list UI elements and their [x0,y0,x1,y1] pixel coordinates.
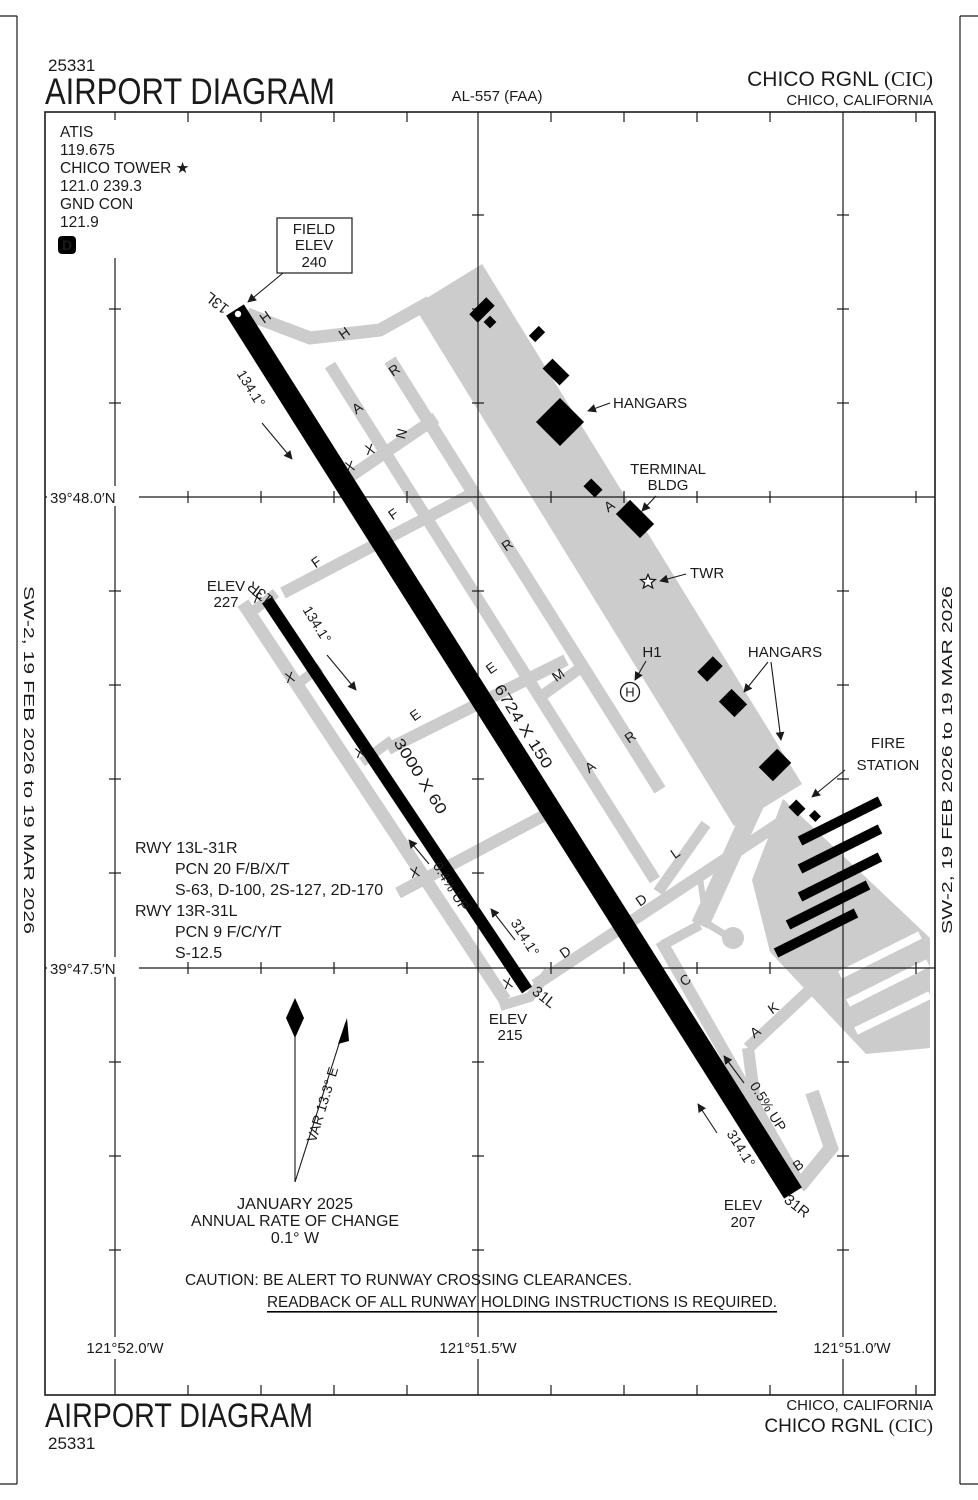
variation-rate-label: ANNUAL RATE OF CHANGE [191,1213,399,1230]
field-elev-line1: FIELD [293,221,336,238]
runway-13r-31l [267,600,527,990]
airport-name: CHICO RGNL [747,68,879,91]
rwy-data-3: RWY 13R-31L [135,903,238,920]
field-elev-line2: ELEV [295,237,333,254]
header: 25331 AIRPORT DIAGRAM AL-557 (FAA) CHICO… [45,56,933,112]
ifr-departure-letter: D [62,237,72,253]
variation-label: VAR 13.3° E [303,1065,341,1144]
lat-label-475: 39°47.5′N [50,961,116,978]
taxiway-letter: E [407,706,424,724]
tower-freqs: 121.0 239.3 [60,178,142,195]
taxiway-letter: E [483,659,500,677]
runup-pad [722,927,744,949]
edge-note-right: SW-2, 19 FEB 2026 to 19 MAR 2026 [939,586,956,934]
caution-line1: CAUTION: BE ALERT TO RUNWAY CROSSING CLE… [185,1272,632,1289]
hangars-east-label: HANGARS [748,644,822,661]
magnetic-north-arrow [338,1018,349,1044]
tower-label: TWR [690,565,724,582]
fire-station-label-2: STATION [857,757,920,774]
runway-data-block: RWY 13L-31R PCN 20 F/B/X/T S-63, D-100, … [135,840,383,962]
field-elev-value: 240 [301,254,326,271]
ground-freq: 121.9 [60,214,99,231]
field-elev-box: FIELD ELEV 240 [248,218,352,302]
footer-airport-icao: (CIC) [889,1416,933,1437]
lon-label-520: 121°52.0′W [86,1340,164,1357]
page-title: AIRPORT DIAGRAM [45,71,335,112]
edge-note-left: SW-2, 19 FEB 2026 to 19 MAR 2026 [20,586,37,934]
rwy-data-2: S-63, D-100, 2S-127, 2D-170 [175,882,383,899]
rwy-data-0: RWY 13L-31R [135,840,238,857]
elev-31l-label: ELEV [489,1011,527,1028]
airport-icao: (CIC) [884,67,933,91]
terminal-label-1: TERMINAL [630,461,706,478]
tower-label: CHICO TOWER ★ [60,160,190,177]
caution-note: CAUTION: BE ALERT TO RUNWAY CROSSING CLE… [185,1272,777,1313]
airport-title: CHICO RGNL(CIC) [747,67,933,91]
runway-num-13l: 13L [202,288,232,317]
helipad-symbol: H [625,685,634,700]
variation-rate-value: 0.1° W [271,1230,320,1247]
heading-13r: 134.1° [300,603,335,646]
elev-31r-value: 207 [730,1214,755,1231]
footer-airport-title: CHICO RGNL(CIC) [764,1416,933,1437]
elev-31l-value: 215 [497,1027,522,1044]
rwy-data-1: PCN 20 F/B/X/T [175,861,290,878]
variation-date: JANUARY 2025 [237,1196,353,1213]
footer-title: AIRPORT DIAGRAM [45,1397,313,1435]
helipad-label: H1 [642,644,661,661]
elev-13r-value: 227 [213,594,238,611]
footer-city: CHICO, CALIFORNIA [786,1397,933,1414]
elev-31r-label: ELEV [724,1197,762,1214]
caution-line2: READBACK OF ALL RUNWAY HOLDING INSTRUCTI… [267,1294,777,1311]
atis-freq: 119.675 [60,142,115,159]
rwy-data-5: S-12.5 [175,945,222,962]
airport-diagram-page: 25331 AIRPORT DIAGRAM AL-557 (FAA) CHICO… [0,0,978,1500]
airport-diagram-svg: 25331 AIRPORT DIAGRAM AL-557 (FAA) CHICO… [0,0,978,1500]
lon-label-515: 121°51.5′W [439,1340,517,1357]
runway-13l-dot [235,311,241,317]
taxiway-letter: F [385,505,401,523]
fire-station-label-1: FIRE [871,735,905,752]
atis-label: ATIS [60,124,93,141]
airport-city: CHICO, CALIFORNIA [786,92,933,109]
footer: CHICO, CALIFORNIA CHICO RGNL(CIC) AIRPOR… [45,1397,933,1453]
rwy-data-4: PCN 9 F/C/Y/T [175,924,282,941]
taxiway-letter: N [392,427,410,441]
footer-chart-number: 25331 [48,1434,95,1453]
variation-block: VAR 13.3° E JANUARY 2025 ANNUAL RATE OF … [191,998,399,1247]
terminal-label-2: BLDG [648,477,689,494]
lon-label-510: 121°51.0′W [813,1340,891,1357]
footer-airport-name: CHICO RGNL [764,1416,883,1437]
elev-13r-label: ELEV [207,578,245,595]
true-north-arrow [286,998,304,1038]
chart-code: AL-557 (FAA) [452,88,543,105]
hangars-north-label: HANGARS [613,395,687,412]
ground-label: GND CON [60,196,133,213]
taxiway-pavement [243,285,930,1187]
lat-label-48: 39°48.0′N [50,490,116,507]
